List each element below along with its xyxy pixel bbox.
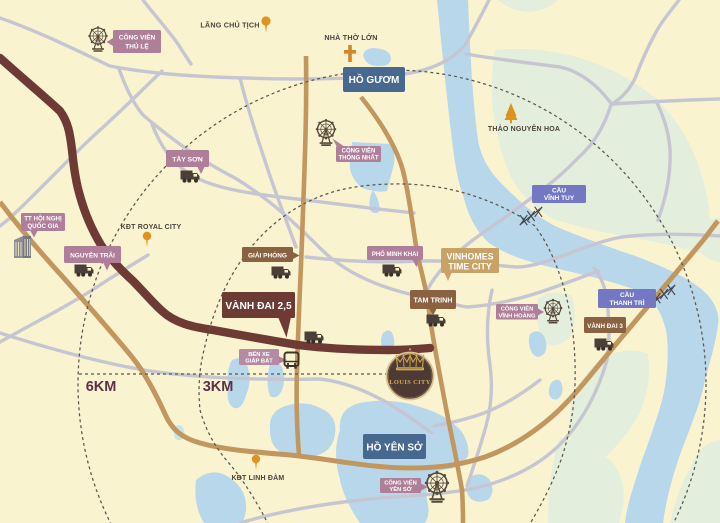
svg-text:VÀNH ĐAI 2,5: VÀNH ĐAI 2,5 xyxy=(225,299,292,312)
svg-text:BẾN XE: BẾN XE xyxy=(248,351,270,358)
svg-text:3KM: 3KM xyxy=(203,379,234,395)
svg-text:NGUYỄN TRÃI: NGUYỄN TRÃI xyxy=(70,250,115,259)
svg-text:TAM TRINH: TAM TRINH xyxy=(414,296,453,305)
svg-text:6KM: 6KM xyxy=(86,379,117,395)
svg-text:VĨNH HOÀNG: VĨNH HOÀNG xyxy=(498,312,536,319)
svg-text:THỦ LỆ: THỦ LỆ xyxy=(125,41,149,50)
svg-text:THỐNG NHẤT: THỐNG NHẤT xyxy=(339,155,379,162)
svg-text:THẢO NGUYÊN HOA: THẢO NGUYÊN HOA xyxy=(488,124,560,133)
svg-text:TÂY SƠN: TÂY SƠN xyxy=(172,154,203,163)
svg-text:VÀNH ĐAI 3: VÀNH ĐAI 3 xyxy=(587,321,623,330)
svg-text:TIME CITY: TIME CITY xyxy=(448,261,492,271)
svg-text:VĨNH TUY: VĨNH TUY xyxy=(544,193,575,202)
svg-text:THANH TRÌ: THANH TRÌ xyxy=(609,298,644,307)
svg-text:TT HỘI NGHỊ: TT HỘI NGHỊ xyxy=(24,215,62,223)
svg-text:KĐT LINH ĐÀM: KĐT LINH ĐÀM xyxy=(232,473,285,482)
svg-text:GIẢI PHÓNG: GIẢI PHÓNG xyxy=(248,250,287,259)
svg-text:GIÁP BÁT: GIÁP BÁT xyxy=(245,358,273,365)
svg-text:CÔNG VIÊN: CÔNG VIÊN xyxy=(501,305,534,313)
svg-text:PHỐ MINH KHAI: PHỐ MINH KHAI xyxy=(372,251,419,258)
svg-text:CÔNG VIÊN: CÔNG VIÊN xyxy=(342,147,376,155)
svg-text:YÊN SỞ: YÊN SỞ xyxy=(389,485,411,493)
svg-text:CÔNG VIÊN: CÔNG VIÊN xyxy=(119,33,156,42)
svg-text:HỒ YÊN SỞ: HỒ YÊN SỞ xyxy=(366,441,423,454)
svg-text:VINHOMES: VINHOMES xyxy=(447,252,494,262)
svg-text:HỒ GƯƠM: HỒ GƯƠM xyxy=(349,73,400,86)
svg-text:KĐT ROYAL CITY: KĐT ROYAL CITY xyxy=(121,224,182,231)
svg-text:NHÀ THỜ LỚN: NHÀ THỜ LỚN xyxy=(324,33,377,42)
svg-text:QUỐC GIA: QUỐC GIA xyxy=(27,223,59,230)
svg-text:CÔNG VIÊN: CÔNG VIÊN xyxy=(384,479,417,487)
svg-text:LOUIS CITY: LOUIS CITY xyxy=(389,379,430,386)
svg-text:LĂNG CHỦ TỊCH: LĂNG CHỦ TỊCH xyxy=(200,21,259,30)
